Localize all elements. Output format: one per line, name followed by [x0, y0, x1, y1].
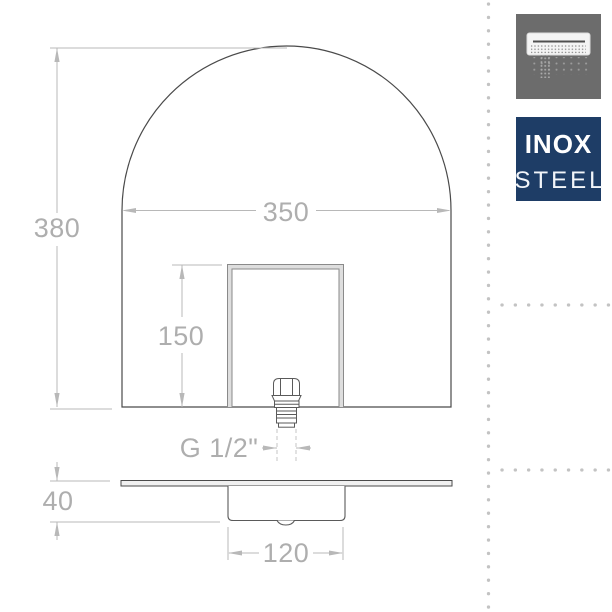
- bottom-view-plate: [121, 481, 452, 487]
- inlet-valve: [272, 379, 301, 428]
- shower-head-nozzles: [531, 45, 586, 54]
- bottom-view: [121, 481, 452, 526]
- material-badge-line2: STEEL: [514, 167, 605, 194]
- front-view: [122, 46, 451, 427]
- shower-head-slot: [533, 41, 585, 43]
- water-spray-wide: [530, 57, 588, 75]
- dim-box-width-label: 120: [263, 538, 310, 568]
- material-badge: INOX STEEL: [514, 117, 605, 201]
- bottom-view-outlet-nub: [277, 521, 295, 526]
- dim-cutout-height-label: 150: [158, 321, 205, 351]
- water-spray-column: [540, 55, 551, 78]
- spec-sheet-page: 380 350 150 G 1/2" 40 120 INOX STEEL: [0, 0, 612, 612]
- bottom-view-mounting-box: [228, 486, 345, 521]
- dim-thread-label: G 1/2": [180, 433, 259, 463]
- material-badge-line1: INOX: [525, 129, 593, 159]
- dim-depth-label: 40: [42, 486, 73, 516]
- dim-overall-width-label: 350: [263, 197, 310, 227]
- technical-drawing-canvas: 380 350 150 G 1/2" 40 120 INOX STEEL: [0, 0, 612, 612]
- product-icon-background: [516, 14, 601, 99]
- dim-overall-height-label: 380: [34, 213, 81, 243]
- product-icon: [516, 14, 601, 99]
